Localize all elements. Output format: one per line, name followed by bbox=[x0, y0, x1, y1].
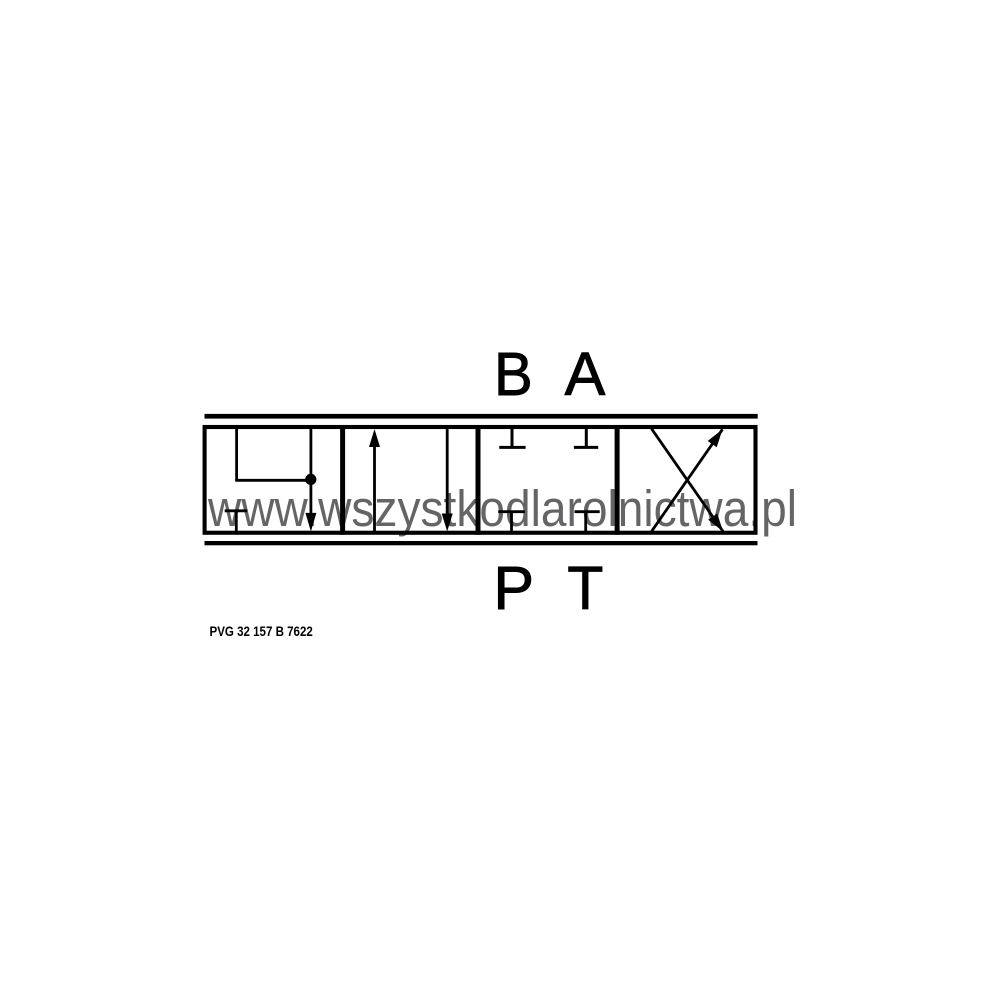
svg-text:B: B bbox=[494, 340, 533, 409]
svg-text:A: A bbox=[565, 340, 606, 408]
svg-text:PVG 32 157 B 7622: PVG 32 157 B 7622 bbox=[210, 623, 313, 639]
svg-text:T: T bbox=[567, 554, 603, 622]
svg-text:P: P bbox=[493, 554, 534, 622]
